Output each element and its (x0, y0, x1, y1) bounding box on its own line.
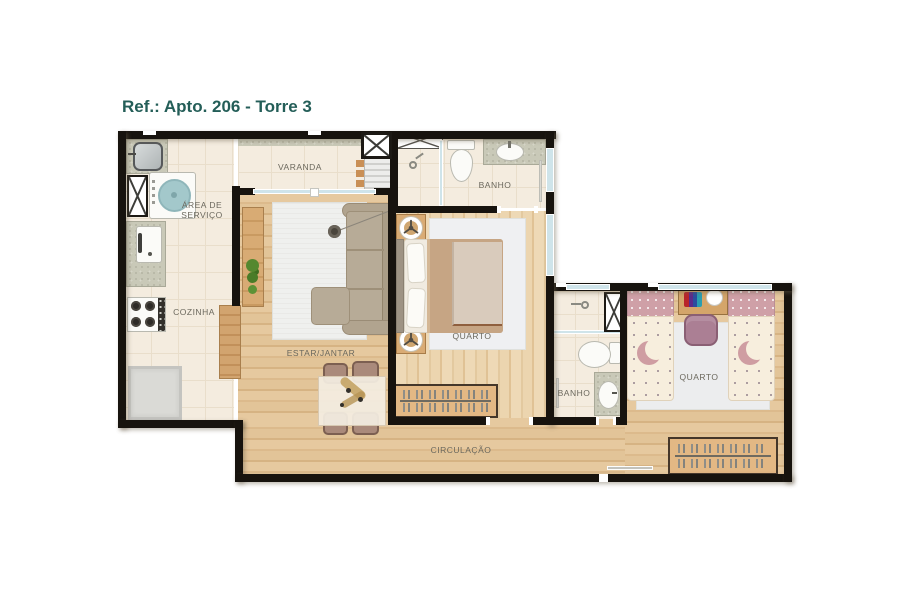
label-circulacao: CIRCULAÇÃO (411, 445, 511, 455)
label-banho-social: BANHO (549, 388, 599, 398)
bath1-window (546, 148, 554, 192)
kidsbed1-moon-icon (637, 341, 661, 365)
wall-top (118, 131, 556, 139)
entry-door-jamb (599, 474, 608, 482)
label-area-servico: ÁREA DE SERVIÇO (172, 200, 232, 220)
wall-living-bedroom1 (388, 195, 396, 420)
bath1-door-jamb-right (534, 206, 538, 213)
pilaster-1 (143, 131, 156, 135)
desk-globe (706, 289, 723, 306)
laundry-sink (133, 142, 163, 171)
wall-bath2-bottom-left (546, 417, 598, 425)
vanity1-faucet (508, 141, 511, 148)
floor-lamp (328, 225, 341, 238)
vanity2-faucet (612, 392, 617, 394)
kidsbed2-moon-icon (738, 341, 762, 365)
kitchen-cabinet (128, 366, 182, 420)
closet2 (668, 437, 778, 475)
desk-books (684, 292, 702, 307)
shower-head-2 (581, 301, 589, 309)
table-bowl-2 (358, 397, 363, 402)
shaft-varanda-icon (361, 132, 392, 159)
wall-wing-right (784, 283, 792, 482)
plant (246, 259, 259, 272)
varanda-door-handle (310, 188, 319, 197)
pilaster-4 (648, 283, 658, 287)
wall-bottom (235, 474, 792, 482)
bath1-door-jamb-left (497, 206, 501, 213)
kitchen-sink-dot (148, 252, 152, 256)
wall-step (235, 420, 243, 482)
bed1-pillow-1 (406, 243, 426, 284)
stove-burner-2 (145, 301, 155, 311)
washer-controls (152, 180, 155, 206)
varanda-shelf (364, 158, 391, 191)
wall-kitchen-living (232, 186, 240, 306)
table-bowl-1 (346, 388, 351, 393)
kidsbed2-pillow (728, 287, 775, 318)
desk-chair (684, 314, 718, 346)
toilet2-bowl (578, 341, 611, 368)
bedroom1-door-jamb-right (529, 417, 533, 425)
sofa-cushion-line1 (346, 249, 384, 251)
wall-bedroom1-bottom (388, 417, 488, 425)
stove-burner-4 (145, 317, 155, 327)
vanity2-sink (598, 381, 619, 409)
tv-console (242, 207, 264, 307)
washer-drum-dot (171, 192, 177, 198)
label-quarto-casal: QUARTO (442, 331, 502, 341)
page-title: Ref.: Apto. 206 - Torre 3 (122, 97, 312, 117)
wardrobe1 (393, 384, 498, 418)
shower-glass-1 (439, 140, 443, 206)
wall-left (118, 131, 126, 428)
laundry-faucet (128, 153, 136, 155)
pilaster-3 (556, 283, 566, 287)
sofa-cushion-line2 (346, 288, 384, 290)
kidsbed1-pillow (627, 287, 674, 318)
wall-kitchen-bottom (118, 420, 243, 428)
label-cozinha: COZINHA (164, 307, 224, 317)
shower-arm-2 (571, 303, 581, 305)
shaft-icon (127, 175, 148, 217)
bedroom2-window (658, 284, 772, 290)
varanda-crates (356, 160, 364, 188)
bath2-door-jamb-left (596, 417, 599, 425)
bedroom1-window (546, 214, 554, 276)
sofa-chaise (311, 287, 350, 325)
label-estar-jantar: ESTAR/JANTAR (271, 348, 371, 358)
floorplan-canvas: Ref.: Apto. 206 - Torre 3 (0, 0, 900, 600)
entry-door-leaf (607, 466, 653, 470)
shower-head-1 (409, 161, 417, 169)
table-bowl-3 (340, 403, 344, 407)
bath2-door-jamb-right (613, 417, 616, 425)
lamp-top (399, 216, 423, 240)
towel-bar-1 (539, 160, 542, 202)
label-banho-suite: BANHO (465, 180, 525, 190)
pilaster-2 (308, 131, 321, 135)
kitchen-sink-handle (138, 233, 142, 253)
label-quarto-solteiro: QUARTO (669, 372, 729, 382)
bed1-pillow-2 (406, 288, 426, 329)
label-varanda: VARANDA (260, 162, 340, 172)
bed1-headboard (396, 239, 404, 333)
bedroom1-door-jamb-left (486, 417, 490, 425)
bed1-throw (452, 242, 502, 326)
wall-bath2-bedroom2 (620, 291, 627, 425)
wall-bath1-bottom (390, 206, 498, 213)
stove-burner-3 (131, 317, 141, 327)
bath2-window (566, 284, 610, 290)
stove-burner-1 (131, 301, 141, 311)
